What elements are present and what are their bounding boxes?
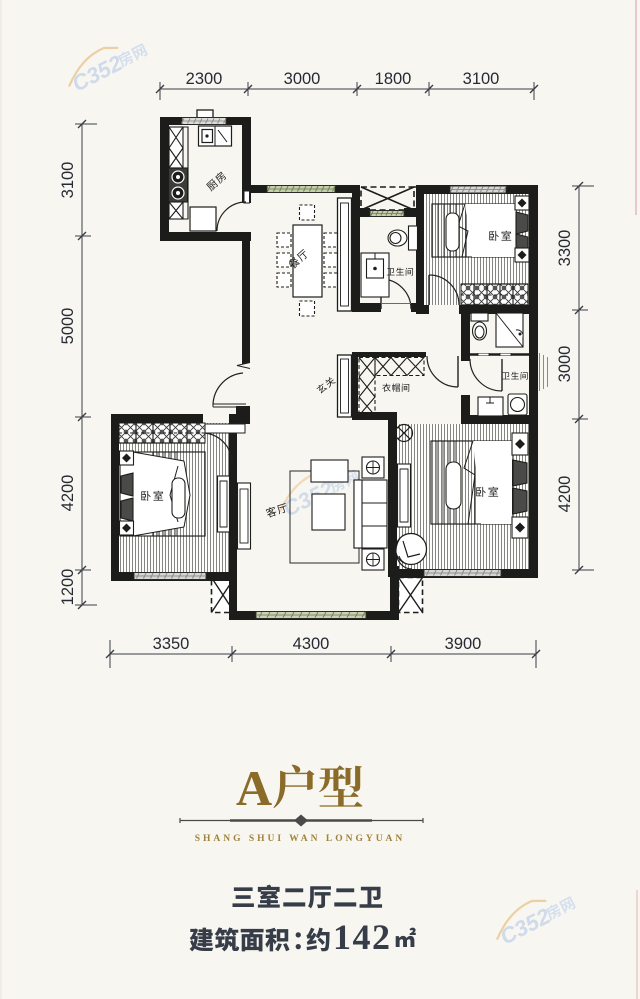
- svg-text:SHANG SHUI WAN LONGYUAN: SHANG SHUI WAN LONGYUAN: [195, 834, 406, 844]
- svg-text:2300: 2300: [186, 70, 223, 88]
- svg-text:3350: 3350: [153, 635, 190, 653]
- svg-text:1200: 1200: [59, 569, 77, 606]
- svg-text:3900: 3900: [445, 635, 482, 653]
- svg-text:A: A: [236, 760, 272, 816]
- svg-text:142: 142: [333, 917, 392, 957]
- svg-text:1800: 1800: [375, 70, 412, 88]
- svg-text:3000: 3000: [284, 70, 321, 88]
- svg-text:3100: 3100: [59, 162, 77, 199]
- svg-text:5000: 5000: [59, 308, 77, 345]
- svg-text:4200: 4200: [59, 475, 77, 512]
- svg-text:4300: 4300: [293, 635, 330, 653]
- svg-text:3000: 3000: [556, 346, 574, 383]
- svg-text:3100: 3100: [463, 70, 500, 88]
- svg-text:4200: 4200: [556, 476, 574, 513]
- svg-text:3300: 3300: [556, 230, 574, 267]
